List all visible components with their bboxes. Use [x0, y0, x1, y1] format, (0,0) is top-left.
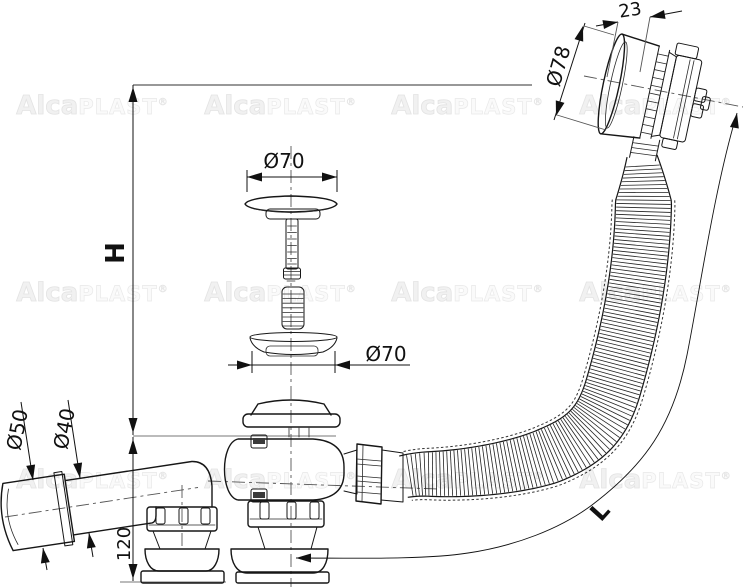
hose-corrugation-rib: [621, 185, 666, 186]
hose-corrugation-rib: [591, 365, 643, 379]
gasket-rim: [250, 333, 337, 342]
dimension-arrowhead: [237, 361, 252, 370]
hose-corrugation-rib: [612, 265, 666, 272]
dimension-arrowhead: [322, 173, 337, 182]
hose-corrugation-rib: [616, 207, 670, 208]
hose-corrugation-rib: [626, 165, 660, 167]
watermark-text: AlcaPLAST®: [391, 278, 542, 308]
waste-body: [225, 435, 404, 583]
hose-corrugation-rib: [594, 355, 647, 369]
hose-corrugation-rib: [616, 214, 670, 216]
hose-corrugation-rib: [590, 369, 642, 384]
housing-top-tab: [675, 43, 699, 59]
dimension-arrowhead: [129, 564, 138, 579]
tee-clip-top-detail: [253, 438, 265, 444]
stem-collar: [284, 268, 301, 279]
tee-clip-bottom-detail: [253, 492, 265, 498]
dimension-arrowhead: [296, 554, 311, 563]
hose-corrugation-rib: [617, 200, 671, 201]
dimension-arrowhead: [39, 547, 50, 563]
dim-label-hose-length: L: [585, 497, 616, 527]
dim-label-plug-diameter: Ø70: [263, 149, 304, 173]
stem-thread-marks: [288, 226, 297, 264]
watermark-text: AlcaPLAST®: [16, 278, 167, 308]
dimension-arrowhead: [602, 18, 618, 29]
dimension-arrowhead: [247, 173, 262, 182]
hose-corrugation-rib: [623, 177, 664, 178]
dimension-arrowhead: [649, 10, 665, 21]
tee-taper: [258, 527, 317, 549]
hose-corrugation-rib: [622, 181, 665, 182]
hose-corrugation-rib: [611, 268, 665, 275]
dim-label-knob-diameter: Ø78: [541, 43, 575, 89]
knob-outlet-threads: [631, 141, 659, 158]
hose-corrugation-rib: [595, 351, 648, 364]
hose-corrugation-rib: [428, 453, 429, 496]
dimension-arrowhead: [575, 25, 588, 42]
drain-flange-plate: [243, 414, 340, 427]
technical-drawing-canvas: AlcaPLAST®AlcaPLAST®AlcaPLAST®AlcaPLAST®…: [0, 0, 743, 587]
dim-label-gasket-diameter: Ø70: [365, 342, 406, 366]
dimension-arrowhead: [129, 418, 138, 433]
watermark-text: AlcaPLAST®: [391, 91, 542, 121]
hose-corrugation-rib: [592, 362, 645, 376]
housing-bottom-tab: [661, 138, 678, 150]
tee-nut-lug-3: [310, 502, 319, 519]
hose-corrugation-rib: [613, 258, 667, 264]
dimension-arrowhead: [552, 100, 565, 117]
hose-corrugation-rib: [615, 236, 669, 240]
hose-corrugation-rib: [585, 386, 636, 404]
hose-scallop-edge: [403, 200, 612, 452]
hose-corrugation-rib: [625, 169, 661, 171]
tee-nut-lug-1: [260, 502, 269, 519]
hose-corrugation-rib: [586, 383, 638, 399]
hose-corrugation-rib: [615, 229, 669, 233]
tee-bell: [231, 549, 328, 573]
hose-corrugation-rib: [624, 173, 663, 175]
hose-union-nut: [356, 444, 382, 504]
watermark-text: AlcaPLAST®: [16, 91, 167, 121]
hose-corrugation-rib: [616, 218, 670, 220]
dimension-arrowhead: [730, 112, 741, 128]
dim-label-body-height: 120: [114, 527, 135, 561]
tee-nut-lug-2: [287, 502, 296, 519]
elbow-nut-lug-2: [179, 508, 188, 524]
hose-corrugation-rib: [616, 203, 670, 204]
hose-corrugation-rib: [588, 376, 640, 391]
ext-lines-23: [607, 17, 650, 77]
watermark-text: AlcaPLAST®: [204, 465, 355, 495]
plug-stem: [286, 219, 298, 269]
dim-label-knob-depth: 23: [617, 0, 643, 23]
hose-union-nut-lugs: [357, 445, 381, 501]
hose-corrugation-rib: [615, 225, 669, 228]
bath-drain-technical-drawing: AlcaPLAST®AlcaPLAST®AlcaPLAST®AlcaPLAST®…: [0, 0, 743, 587]
hose-corrugation-rib: [597, 344, 650, 357]
hose-corrugation-rib: [615, 232, 669, 236]
dim-label-installation-height: H: [101, 242, 131, 264]
dimension-arrowhead: [129, 439, 138, 454]
dimension-arrowhead: [85, 532, 96, 548]
watermark-text: AlcaPLAST®: [579, 91, 730, 121]
knob-outlet: [630, 135, 660, 163]
knob-knurl-band: [640, 46, 670, 140]
stem-collar-ridges: [284, 272, 300, 282]
hose-corrugation-rib: [616, 211, 670, 213]
hose-corrugation-rib: [596, 348, 649, 361]
watermark-text: AlcaPLAST®: [204, 91, 355, 121]
hose-corrugation-rib: [620, 188, 667, 189]
plug-assembly: [243, 196, 340, 437]
watermark-text: AlcaPLAST®: [16, 465, 167, 495]
elbow-nut-lug-3: [201, 508, 210, 524]
tee-slip-nut: [248, 501, 324, 527]
elbow-bell: [145, 549, 219, 571]
hose-corrugation-rib: [593, 358, 646, 372]
hose-corrugation-rib: [612, 261, 666, 268]
watermark-text: AlcaPLAST®: [204, 278, 355, 308]
dimension-arrowhead: [335, 361, 350, 370]
corrugated-overflow-hose: [399, 155, 675, 500]
hose-corrugation-rib: [616, 222, 670, 225]
hose-corrugation-rib: [614, 240, 668, 245]
hose-edge: [408, 155, 672, 498]
spring-coils: [283, 294, 303, 326]
elbow-nut-lug-1: [156, 508, 165, 524]
elbow-base-plate: [141, 571, 224, 583]
hose-corrugation-rib: [598, 340, 651, 353]
watermark-text: AlcaPLAST®: [579, 465, 730, 495]
hose-corrugation-rib: [589, 372, 641, 387]
